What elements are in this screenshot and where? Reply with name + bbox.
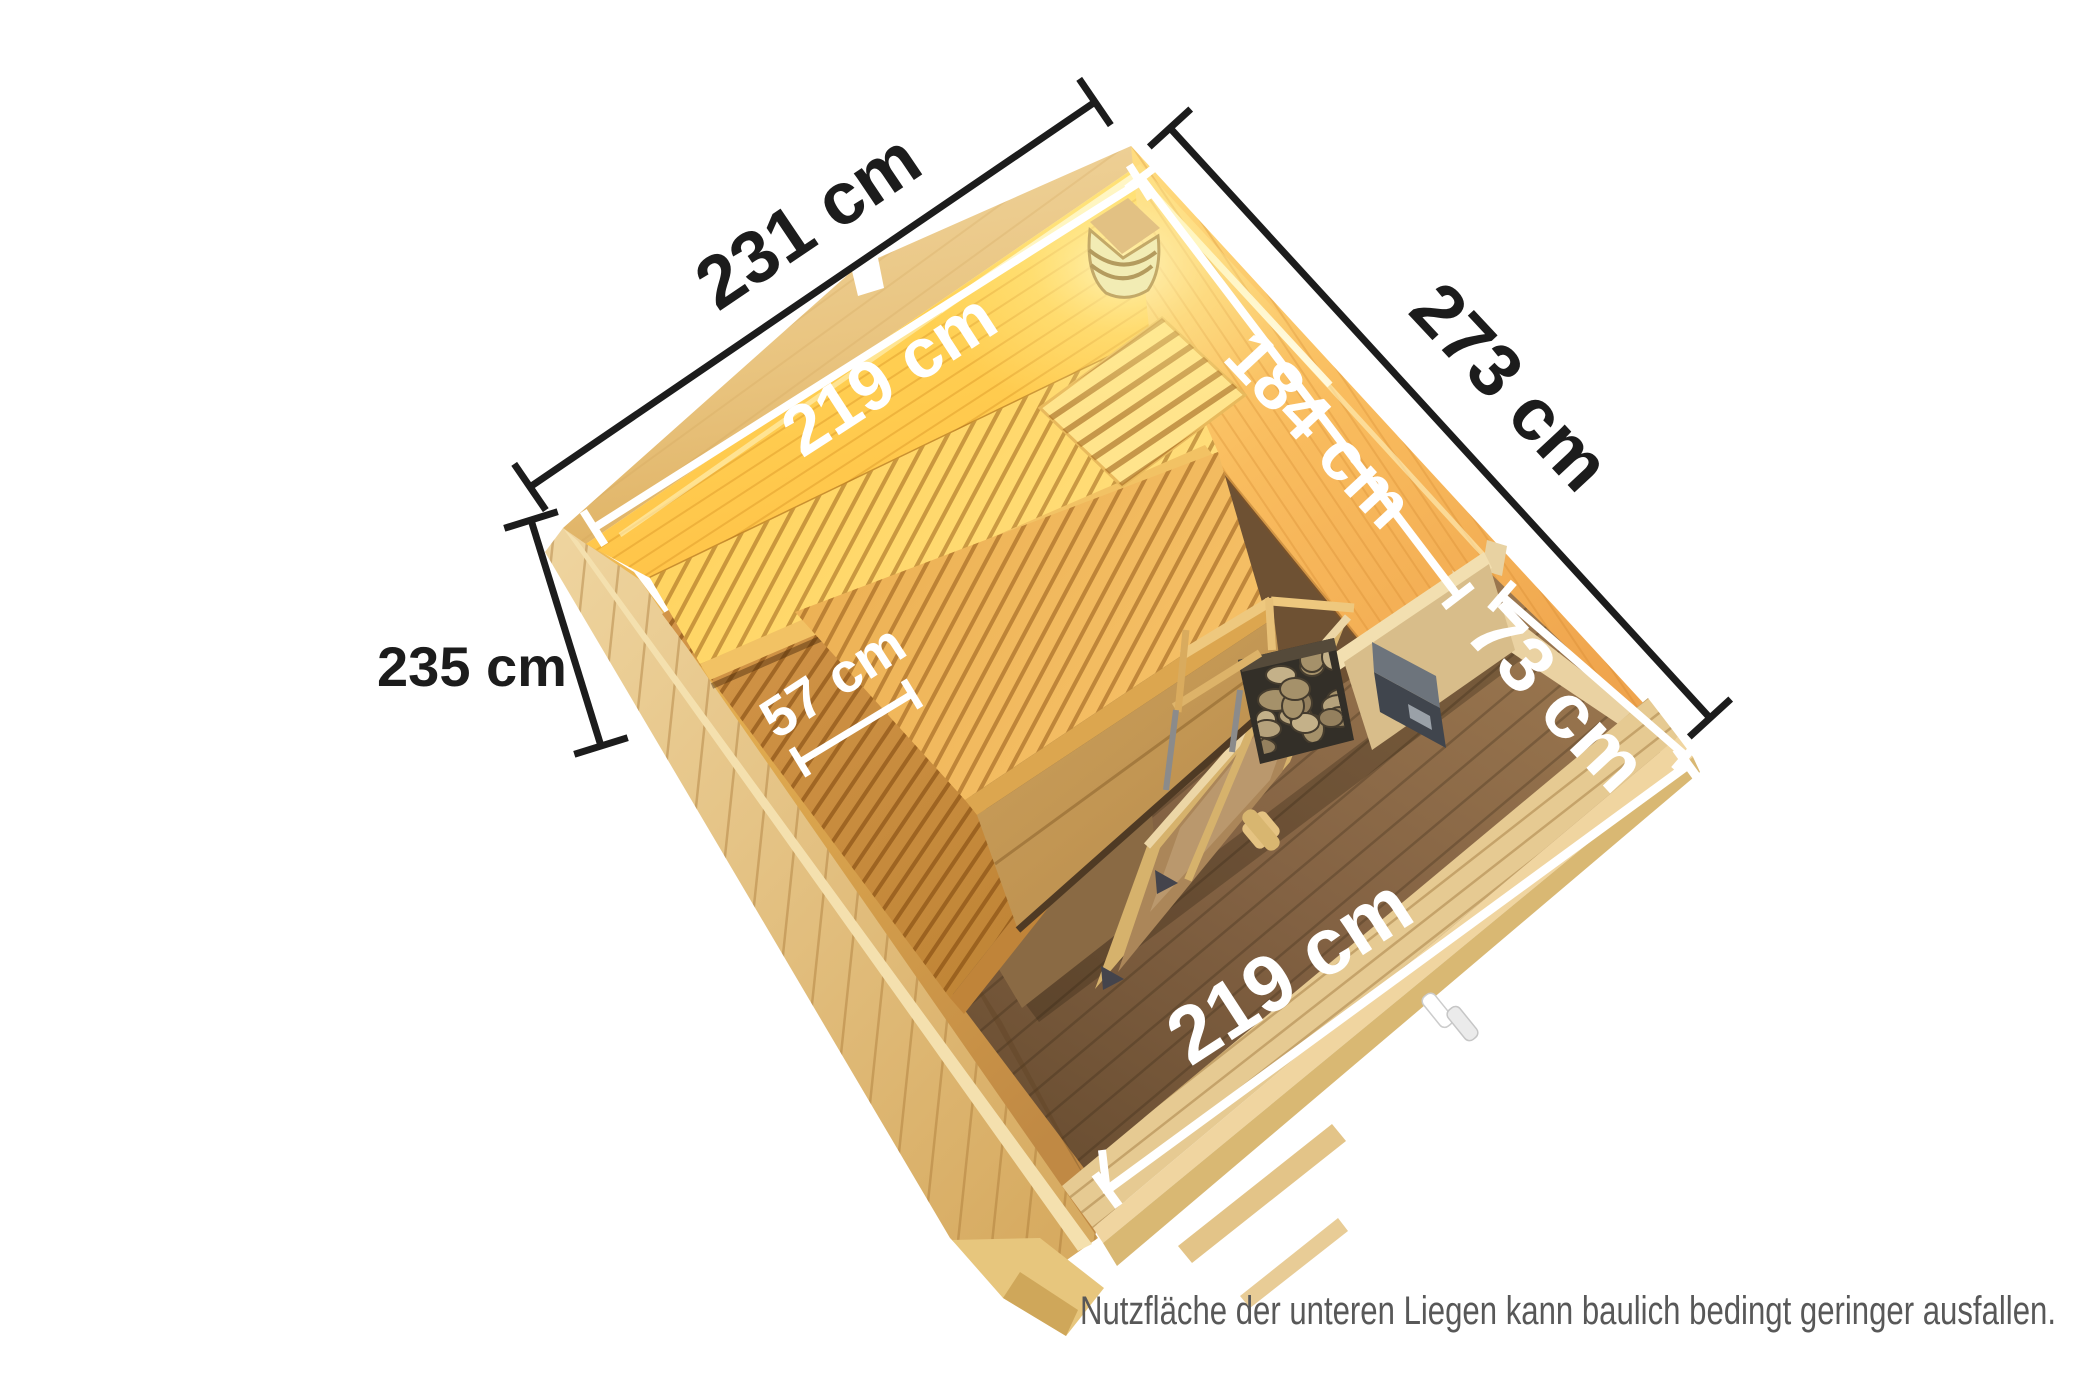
svg-text:235 cm: 235 cm bbox=[377, 635, 567, 698]
svg-text:Nutzfläche der unteren Liegen: Nutzfläche der unteren Liegen kann bauli… bbox=[1080, 1289, 2056, 1333]
